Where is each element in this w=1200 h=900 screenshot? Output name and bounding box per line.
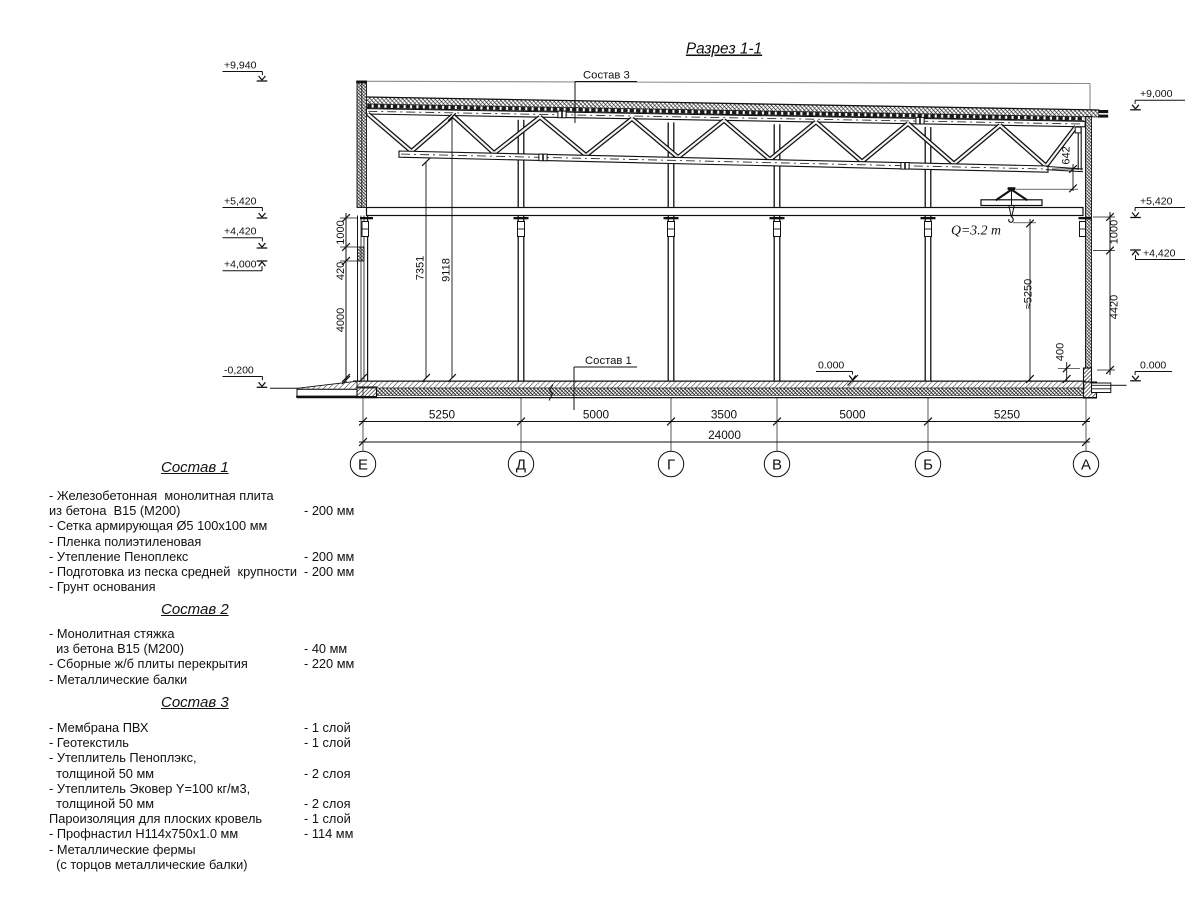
- svg-text:0.000: 0.000: [818, 359, 844, 371]
- svg-text:24000: 24000: [708, 428, 741, 442]
- svg-text:420: 420: [335, 262, 347, 280]
- svg-text:1000: 1000: [335, 220, 347, 244]
- svg-text:+5,420: +5,420: [1140, 195, 1173, 207]
- svg-text:400: 400: [1055, 343, 1067, 361]
- svg-text:+5,420: +5,420: [224, 195, 257, 207]
- svg-text:+9,000: +9,000: [1140, 88, 1173, 100]
- svg-text:-0,200: -0,200: [224, 364, 254, 376]
- svg-text:0.000: 0.000: [1140, 359, 1166, 371]
- svg-text:5000: 5000: [583, 408, 610, 422]
- svg-text:4000: 4000: [335, 308, 347, 332]
- svg-text:Состав 3: Состав 3: [583, 70, 630, 82]
- svg-text:Разрез 1-1: Разрез 1-1: [686, 41, 762, 58]
- svg-text:7351: 7351: [415, 256, 427, 280]
- svg-text:+4,420: +4,420: [224, 226, 257, 238]
- svg-text:Д: Д: [516, 456, 526, 473]
- svg-text:3500: 3500: [711, 408, 738, 422]
- svg-text:642: 642: [1061, 146, 1073, 164]
- svg-text:5250: 5250: [994, 408, 1021, 422]
- svg-text:Е: Е: [358, 456, 368, 473]
- svg-text:Б: Б: [923, 456, 933, 473]
- svg-text:+4,000: +4,000: [224, 259, 257, 271]
- svg-text:5000: 5000: [839, 408, 866, 422]
- svg-text:+9,940: +9,940: [224, 59, 257, 71]
- svg-text:Q=3.2 т: Q=3.2 т: [951, 223, 1001, 238]
- svg-text:≈5250: ≈5250: [1023, 279, 1035, 310]
- svg-text:Состав 1: Состав 1: [585, 355, 632, 367]
- svg-text:5250: 5250: [429, 408, 456, 422]
- svg-text:А: А: [1081, 456, 1091, 473]
- svg-text:9118: 9118: [441, 258, 453, 282]
- svg-text:4420: 4420: [1109, 295, 1121, 319]
- svg-text:+4,420: +4,420: [1143, 247, 1176, 259]
- svg-text:1000: 1000: [1109, 220, 1121, 244]
- svg-text:Г: Г: [667, 456, 675, 473]
- svg-text:В: В: [772, 456, 782, 473]
